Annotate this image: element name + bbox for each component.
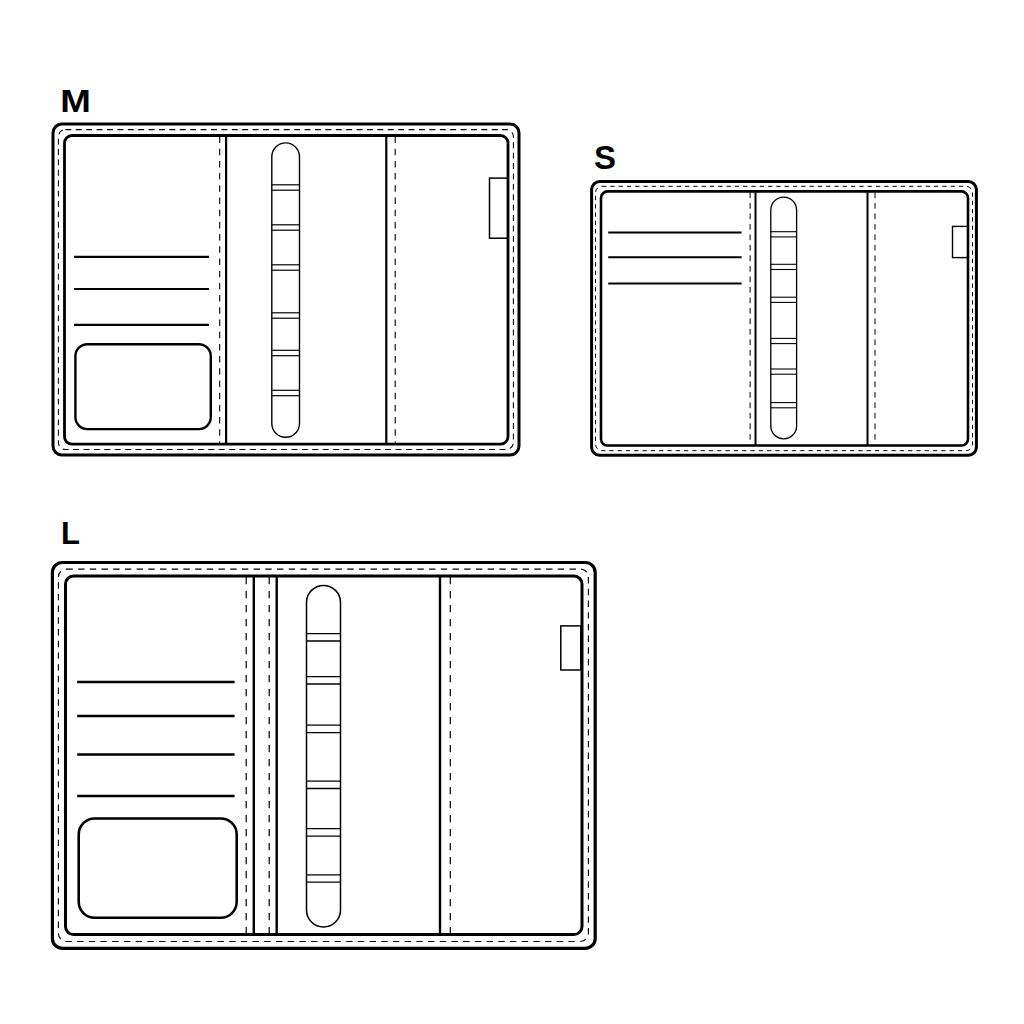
svg-text:L: L [61, 516, 80, 551]
svg-text:S: S [594, 139, 616, 176]
svg-text:M: M [60, 84, 91, 119]
